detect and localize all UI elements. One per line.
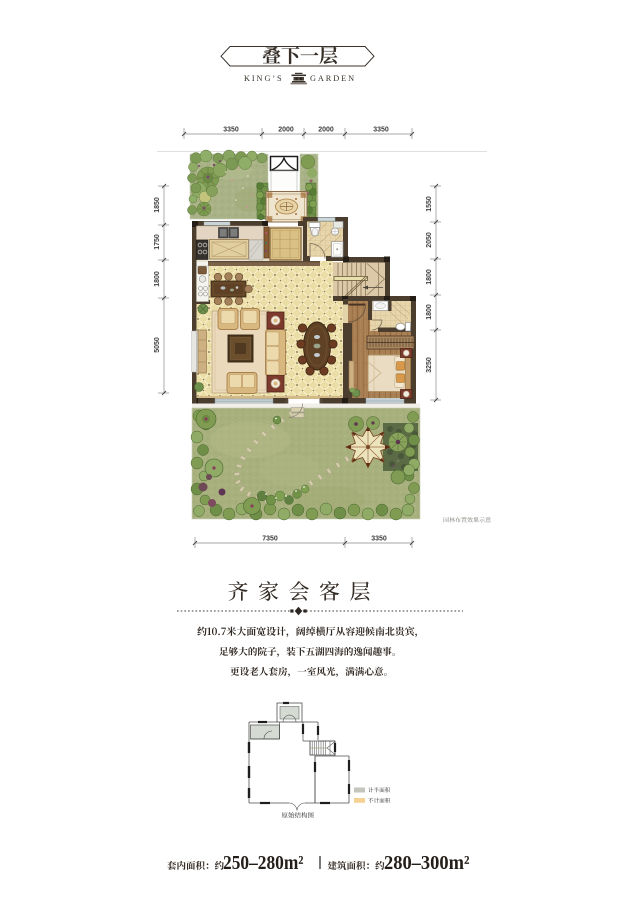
svg-text:5050: 5050	[154, 337, 161, 353]
svg-text:1850: 1850	[154, 197, 161, 213]
svg-text:3350: 3350	[373, 127, 389, 134]
svg-text:1750: 1750	[154, 234, 161, 250]
svg-text:280–300m²: 280–300m²	[384, 853, 470, 874]
svg-text:KING’S: KING’S	[244, 74, 284, 83]
svg-text:1800: 1800	[426, 269, 433, 285]
svg-text:250–280m²: 250–280m²	[223, 853, 304, 874]
svg-text:7350: 7350	[262, 536, 278, 543]
svg-text:2050: 2050	[426, 232, 433, 248]
svg-text:3250: 3250	[426, 357, 433, 373]
svg-text:3350: 3350	[223, 127, 239, 134]
svg-text:GARDEN: GARDEN	[310, 74, 356, 83]
svg-text:2000: 2000	[278, 127, 294, 134]
svg-text:1800: 1800	[154, 271, 161, 287]
svg-text:1550: 1550	[426, 196, 433, 212]
svg-text:2000: 2000	[318, 127, 334, 134]
svg-text:1800: 1800	[426, 304, 433, 320]
svg-text:3350: 3350	[371, 536, 387, 543]
